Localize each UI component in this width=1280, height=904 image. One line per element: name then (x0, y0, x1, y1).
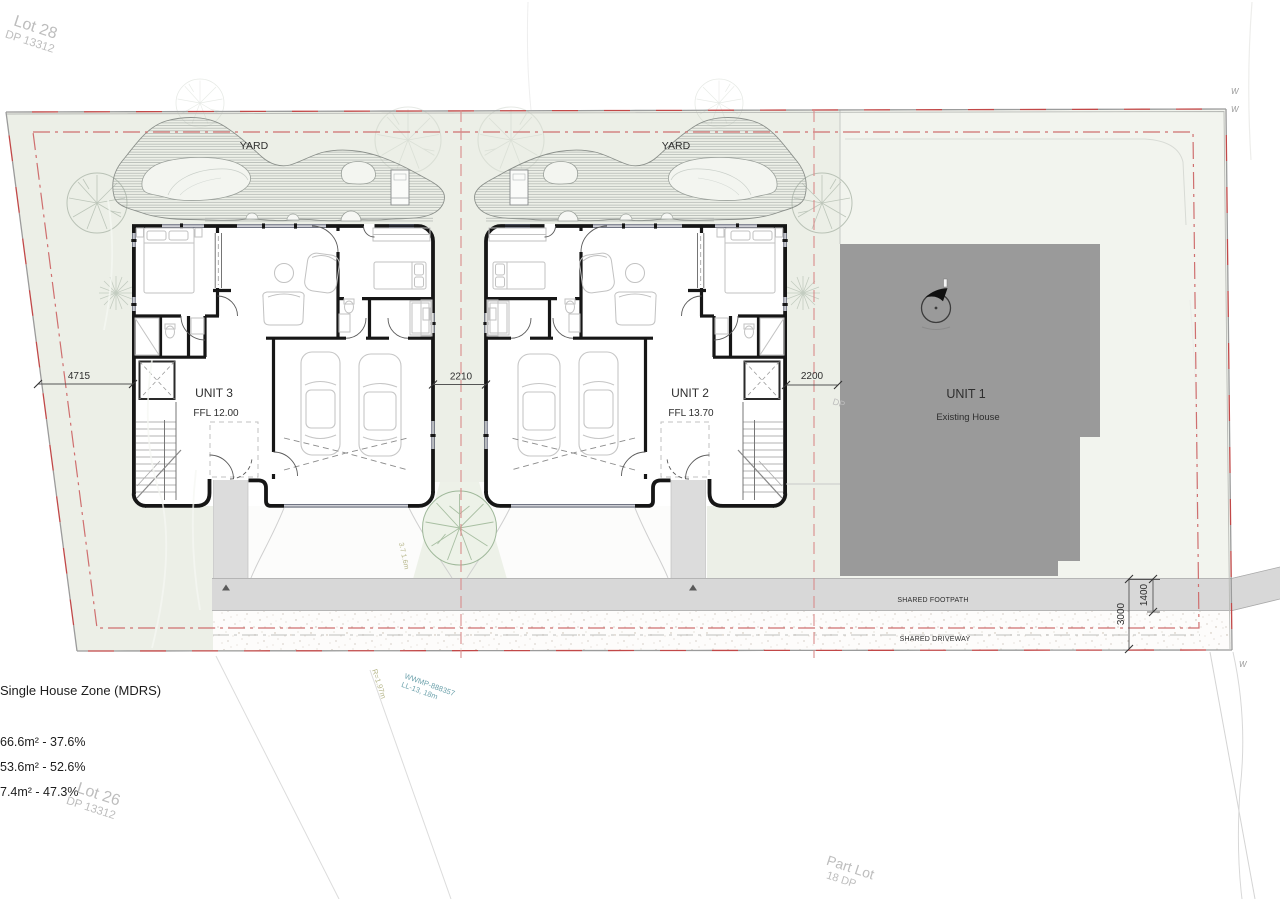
svg-text:Single House Zone (MDRS): Single House Zone (MDRS) (0, 683, 161, 698)
svg-text:SHARED DRIVEWAY: SHARED DRIVEWAY (900, 636, 971, 643)
svg-text:FFL 13.70: FFL 13.70 (668, 408, 714, 419)
svg-text:3000: 3000 (1116, 602, 1127, 625)
svg-text:UNIT 1: UNIT 1 (946, 387, 985, 401)
svg-text:1400: 1400 (1139, 583, 1150, 606)
svg-text:53.6m² - 52.6%: 53.6m² - 52.6% (0, 760, 85, 774)
svg-text:Existing House: Existing House (936, 412, 999, 423)
svg-text:2200: 2200 (801, 371, 824, 382)
svg-text:66.6m² - 37.6%: 66.6m² - 37.6% (0, 735, 85, 749)
svg-text:UNIT 2: UNIT 2 (671, 386, 709, 400)
svg-text:4715: 4715 (68, 371, 91, 382)
svg-text:FFL 12.00: FFL 12.00 (193, 408, 239, 419)
svg-text:2210: 2210 (450, 372, 473, 383)
svg-text:YARD: YARD (662, 140, 691, 152)
svg-text:UNIT 3: UNIT 3 (195, 386, 233, 400)
svg-text:SHARED FOOTPATH: SHARED FOOTPATH (897, 597, 968, 604)
svg-text:YARD: YARD (240, 140, 269, 152)
